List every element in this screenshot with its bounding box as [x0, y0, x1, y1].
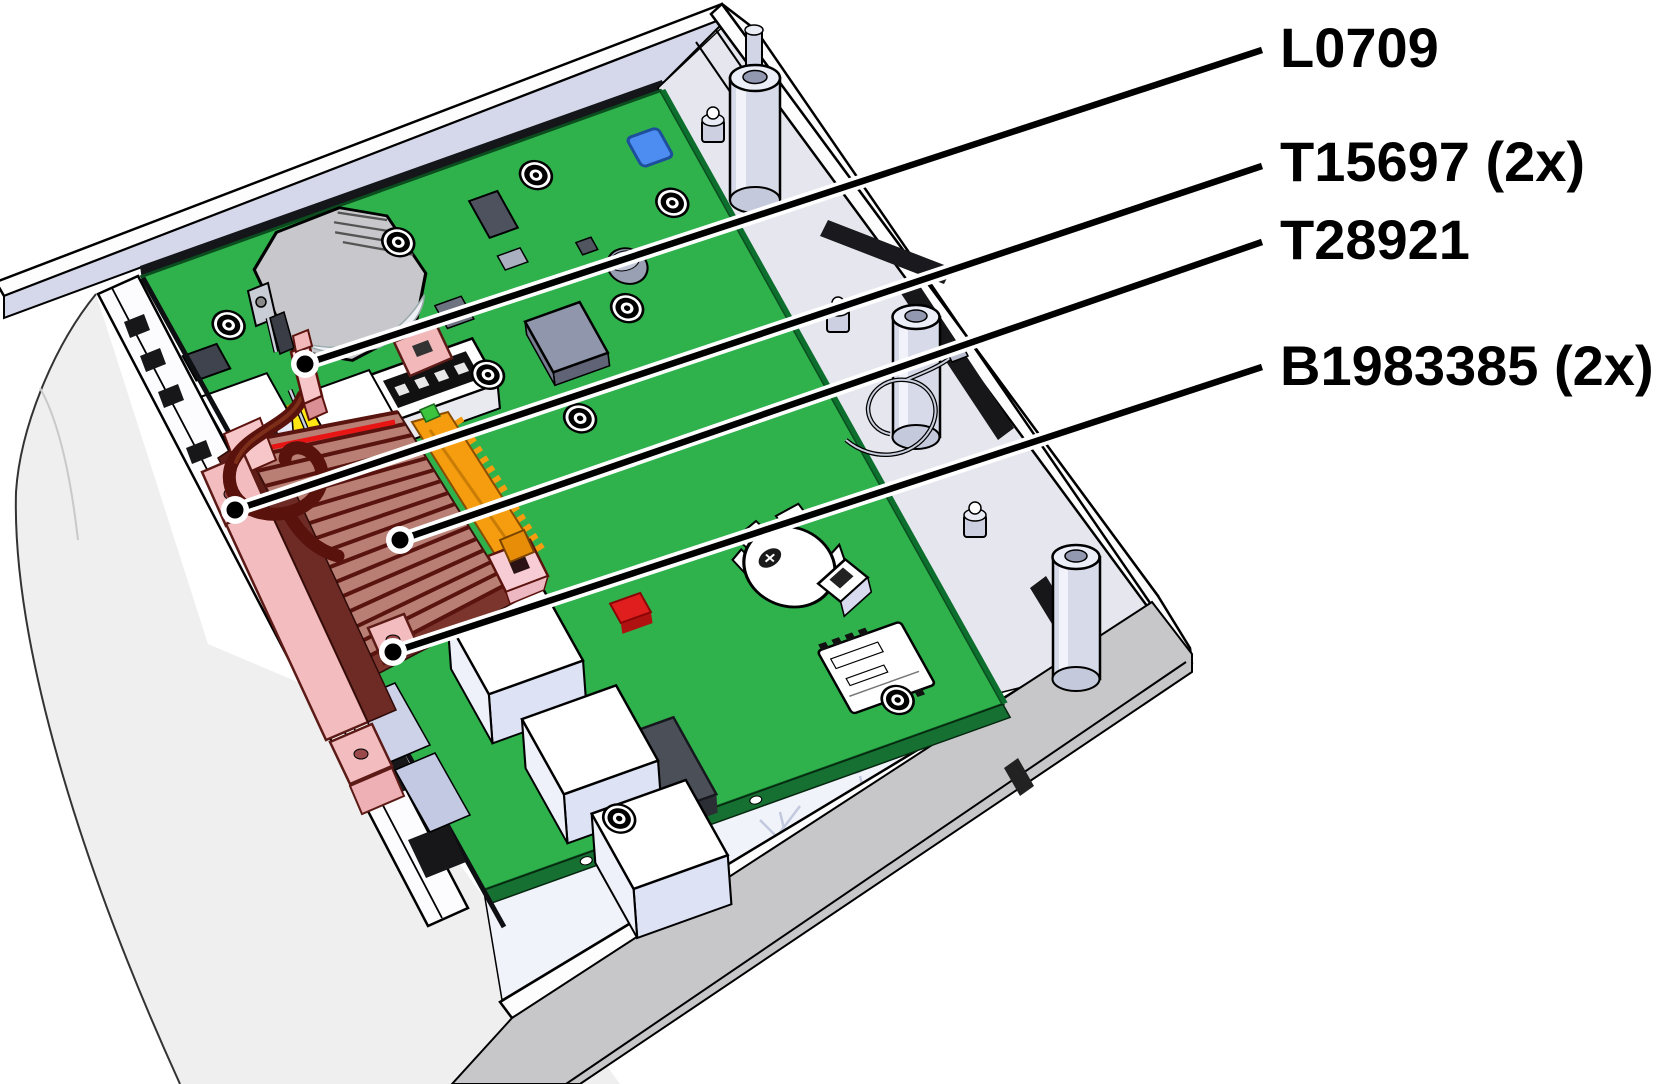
standoff-post: [730, 65, 780, 213]
callout-label-t28921: T28921: [1280, 208, 1470, 271]
exploded-view-drawing: L0709 T15697 (2x) T28921 B1983385 (2x): [0, 0, 1659, 1084]
standoff-post: [1053, 545, 1101, 691]
callout-label-b1983385: B1983385 (2x): [1280, 334, 1654, 397]
callout-label-t15697: T15697 (2x): [1280, 130, 1585, 193]
callout-label-l0709: L0709: [1280, 16, 1439, 79]
callout-labels: L0709 T15697 (2x) T28921 B1983385 (2x): [1280, 16, 1654, 397]
illustration-canvas: L0709 T15697 (2x) T28921 B1983385 (2x): [0, 0, 1659, 1084]
